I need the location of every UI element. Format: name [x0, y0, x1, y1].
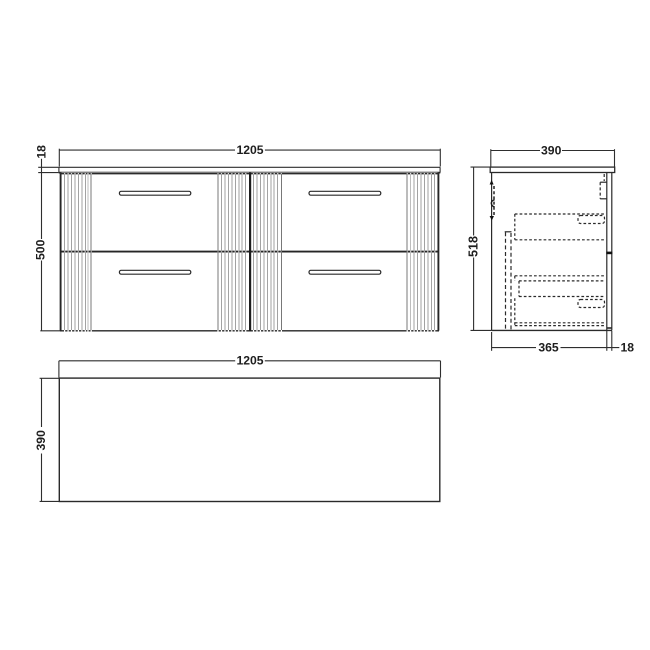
- svg-text:18: 18: [621, 341, 635, 355]
- svg-text:390: 390: [34, 430, 48, 451]
- svg-text:518: 518: [467, 236, 481, 257]
- svg-text:390: 390: [541, 143, 562, 157]
- svg-text:18: 18: [34, 145, 48, 159]
- svg-text:365: 365: [538, 341, 559, 355]
- svg-text:500: 500: [34, 239, 48, 260]
- svg-text:1205: 1205: [236, 354, 263, 368]
- svg-text:1205: 1205: [236, 143, 263, 157]
